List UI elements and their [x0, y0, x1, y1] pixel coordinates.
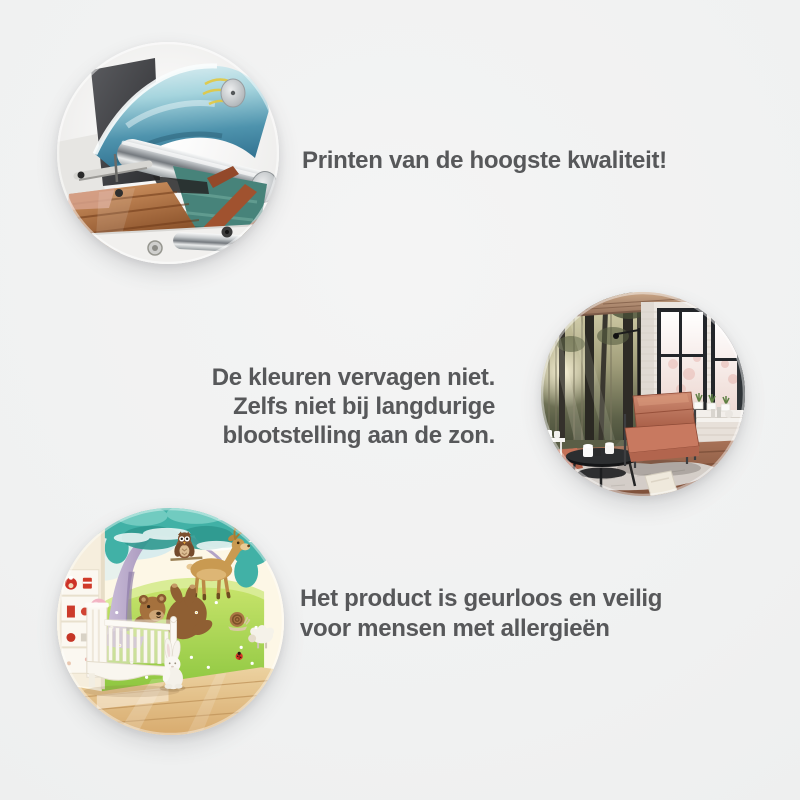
printer-photo: [57, 42, 279, 264]
text-line: Het product is geurloos en veilig: [300, 584, 662, 614]
nursery-illustration: [57, 508, 284, 735]
text-line: blootstelling aan de zon.: [212, 421, 495, 450]
text-line: voor mensen met allergieën: [300, 614, 662, 644]
living-room-photo: [541, 292, 745, 496]
nursery-photo: [57, 508, 284, 735]
text-line: De kleuren vervagen niet.: [212, 363, 495, 392]
printer-illustration: [57, 42, 279, 264]
text-line: Zelfs niet bij langdurige: [212, 392, 495, 421]
text-line: Printen van de hoogste kwaliteit!: [302, 147, 667, 175]
product-benefits-panel: Printen van de hoogste kwaliteit! De kle…: [0, 0, 800, 800]
benefit-print-quality-text: Printen van de hoogste kwaliteit!: [302, 147, 667, 175]
benefit-no-fading-text: De kleuren vervagen niet. Zelfs niet bij…: [212, 363, 495, 450]
living-room-illustration: [541, 292, 745, 496]
benefit-odorless-safe-text: Het product is geurloos en veilig voor m…: [300, 584, 662, 644]
